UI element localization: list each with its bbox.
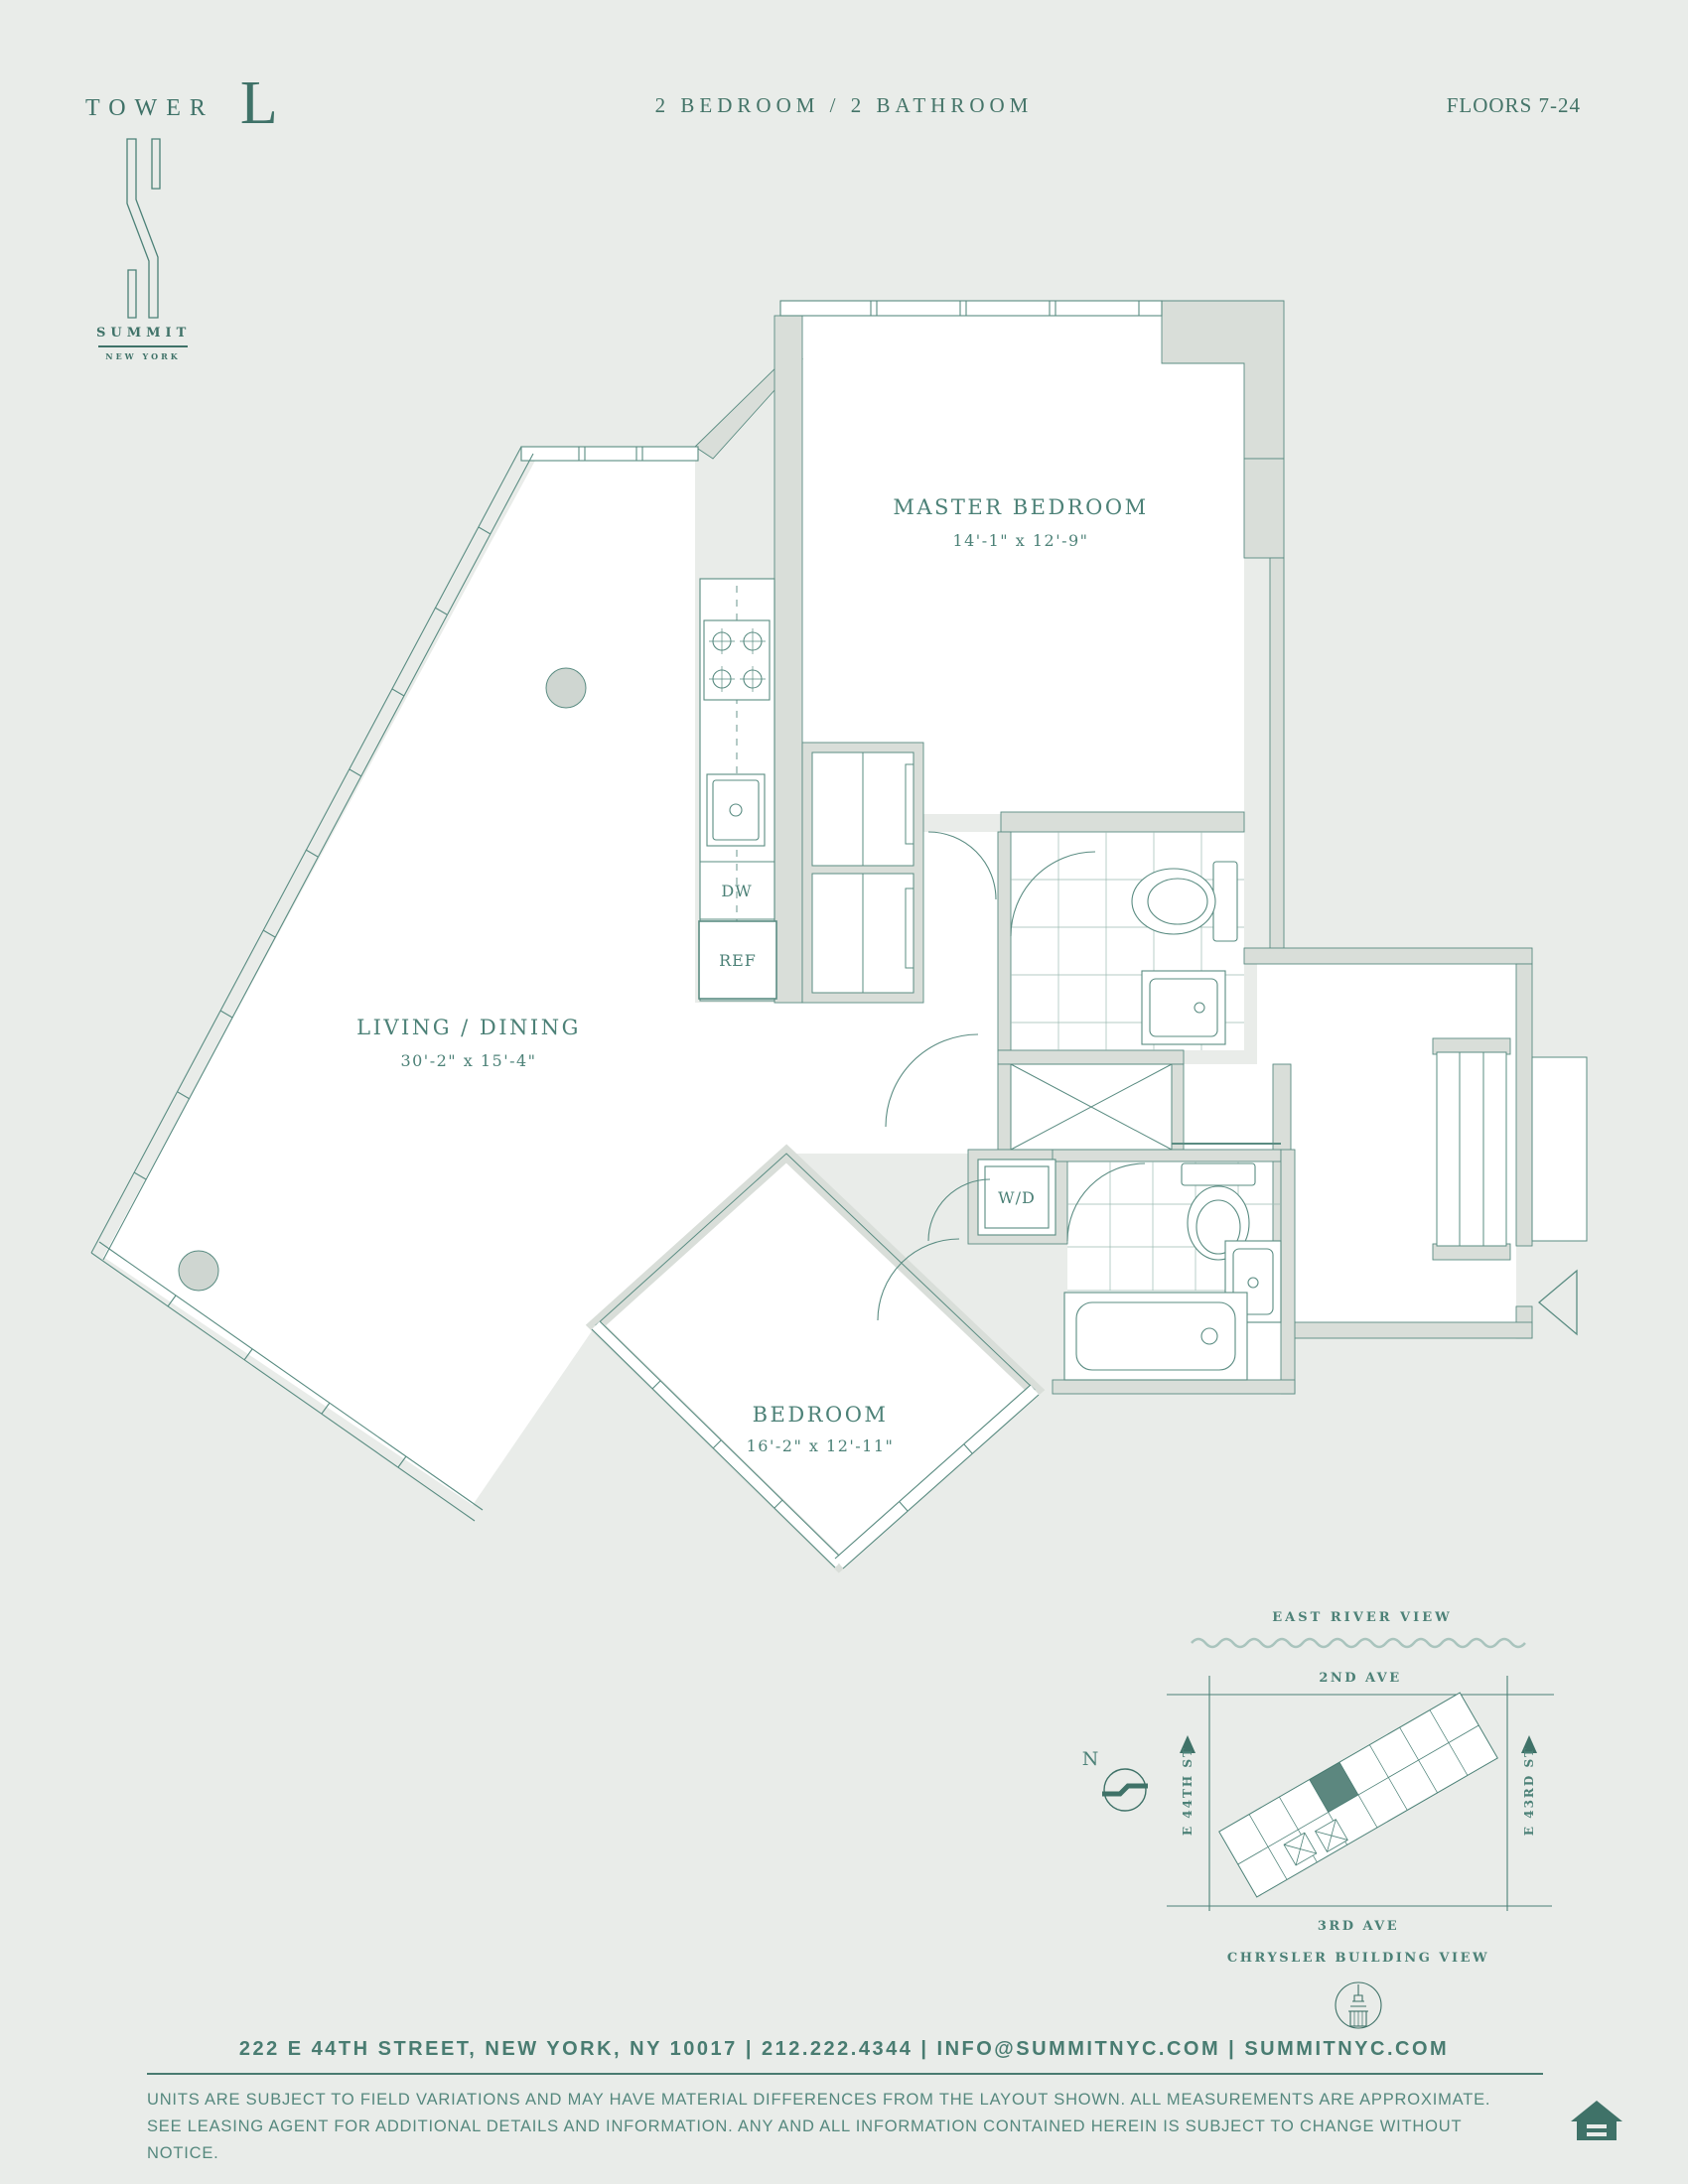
bedroom-dims: 16'-2" x 12'-11" bbox=[747, 1436, 895, 1455]
contact-line: 222 E 44TH STREET, NEW YORK, NY 10017 | … bbox=[0, 2038, 1688, 2061]
passage-floor bbox=[1184, 1064, 1273, 1150]
window-wall-master bbox=[780, 301, 1162, 316]
foyer-floor bbox=[923, 832, 998, 1154]
window-wall-top-left bbox=[521, 447, 698, 461]
bathtub-icon bbox=[1064, 1293, 1247, 1380]
e43-street-label: E 43RD ST bbox=[1522, 1746, 1536, 1836]
kitchen-sink-icon bbox=[707, 774, 765, 846]
chrysler-building-icon bbox=[1336, 1982, 1381, 2028]
bedroom-label: BEDROOM bbox=[753, 1403, 889, 1427]
chrysler-view-label: CHRYSLER BUILDING VIEW bbox=[1227, 1951, 1489, 1966]
compass-n-label: N bbox=[1082, 1748, 1099, 1770]
kitchen bbox=[699, 579, 776, 1001]
east-river-view-label: EAST RIVER VIEW bbox=[1272, 1610, 1452, 1625]
river-wave-line bbox=[1192, 1639, 1525, 1647]
site-map: EAST RIVER VIEW 2ND AVE E 44TH ST E 43RD… bbox=[1082, 1610, 1554, 2028]
column-icon bbox=[179, 1251, 218, 1291]
refrigerator-label: REF bbox=[719, 951, 757, 970]
disclaimer: UNITS ARE SUBJECT TO FIELD VARIATIONS AN… bbox=[147, 2087, 1537, 2167]
footer-rule bbox=[147, 2073, 1543, 2075]
bath1-sink-icon bbox=[1142, 971, 1225, 1044]
washer-dryer-label: W/D bbox=[998, 1188, 1036, 1207]
second-ave-label: 2ND AVE bbox=[1319, 1671, 1401, 1686]
master-bedroom-floor bbox=[802, 316, 1244, 814]
living-dining-dims: 30'-2" x 15'-4" bbox=[400, 1051, 536, 1070]
building-footprint bbox=[1219, 1693, 1497, 1897]
column-icon bbox=[546, 668, 586, 708]
master-bedroom-dims: 14'-1" x 12'-9" bbox=[952, 531, 1088, 550]
master-bedroom-label: MASTER BEDROOM bbox=[893, 495, 1148, 519]
e44-street-label: E 44TH ST bbox=[1181, 1746, 1195, 1836]
entry-door-icon bbox=[1539, 1271, 1577, 1334]
floor-plan-canvas: DW REF bbox=[0, 0, 1688, 2184]
third-ave-label: 3RD AVE bbox=[1318, 1919, 1399, 1934]
disclaimer-line-2: SEE LEASING AGENT FOR ADDITIONAL DETAILS… bbox=[147, 2114, 1537, 2167]
equal-housing-icon bbox=[1571, 2101, 1622, 2140]
living-dining-label: LIVING / DINING bbox=[356, 1016, 581, 1039]
north-compass-icon bbox=[1102, 1769, 1148, 1811]
stove-icon bbox=[704, 620, 770, 700]
linen-closet-icon bbox=[1011, 1064, 1172, 1150]
dishwasher-label: DW bbox=[721, 882, 752, 900]
summit-logo-icon bbox=[127, 139, 160, 318]
floor-plan: DW REF bbox=[91, 301, 1587, 1569]
disclaimer-line-1: UNITS ARE SUBJECT TO FIELD VARIATIONS AN… bbox=[147, 2087, 1537, 2114]
